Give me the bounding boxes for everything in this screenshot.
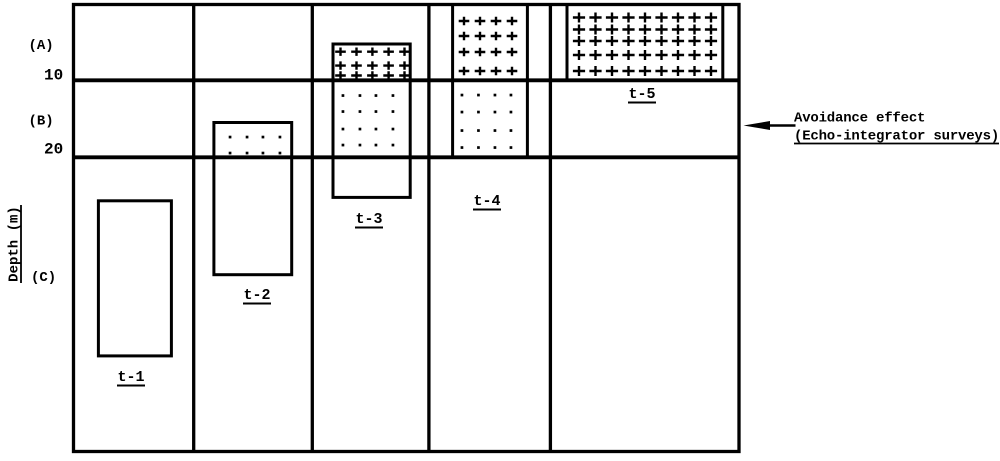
svg-text:t-1: t-1 — [118, 369, 145, 386]
svg-text:t-3: t-3 — [356, 211, 383, 228]
svg-text:t-5: t-5 — [629, 86, 656, 103]
svg-text:10: 10 — [44, 67, 63, 85]
svg-text:(B): (B) — [29, 114, 54, 130]
svg-text:t-4: t-4 — [474, 193, 501, 210]
svg-text:(A): (A) — [29, 38, 54, 54]
svg-text:20: 20 — [44, 141, 63, 159]
svg-text:Avoidance effect: Avoidance effect — [794, 111, 925, 127]
svg-text:t-2: t-2 — [244, 287, 271, 304]
svg-text:(C): (C) — [31, 270, 56, 286]
svg-text:(Echo-integrator surveys): (Echo-integrator surveys) — [794, 129, 999, 145]
